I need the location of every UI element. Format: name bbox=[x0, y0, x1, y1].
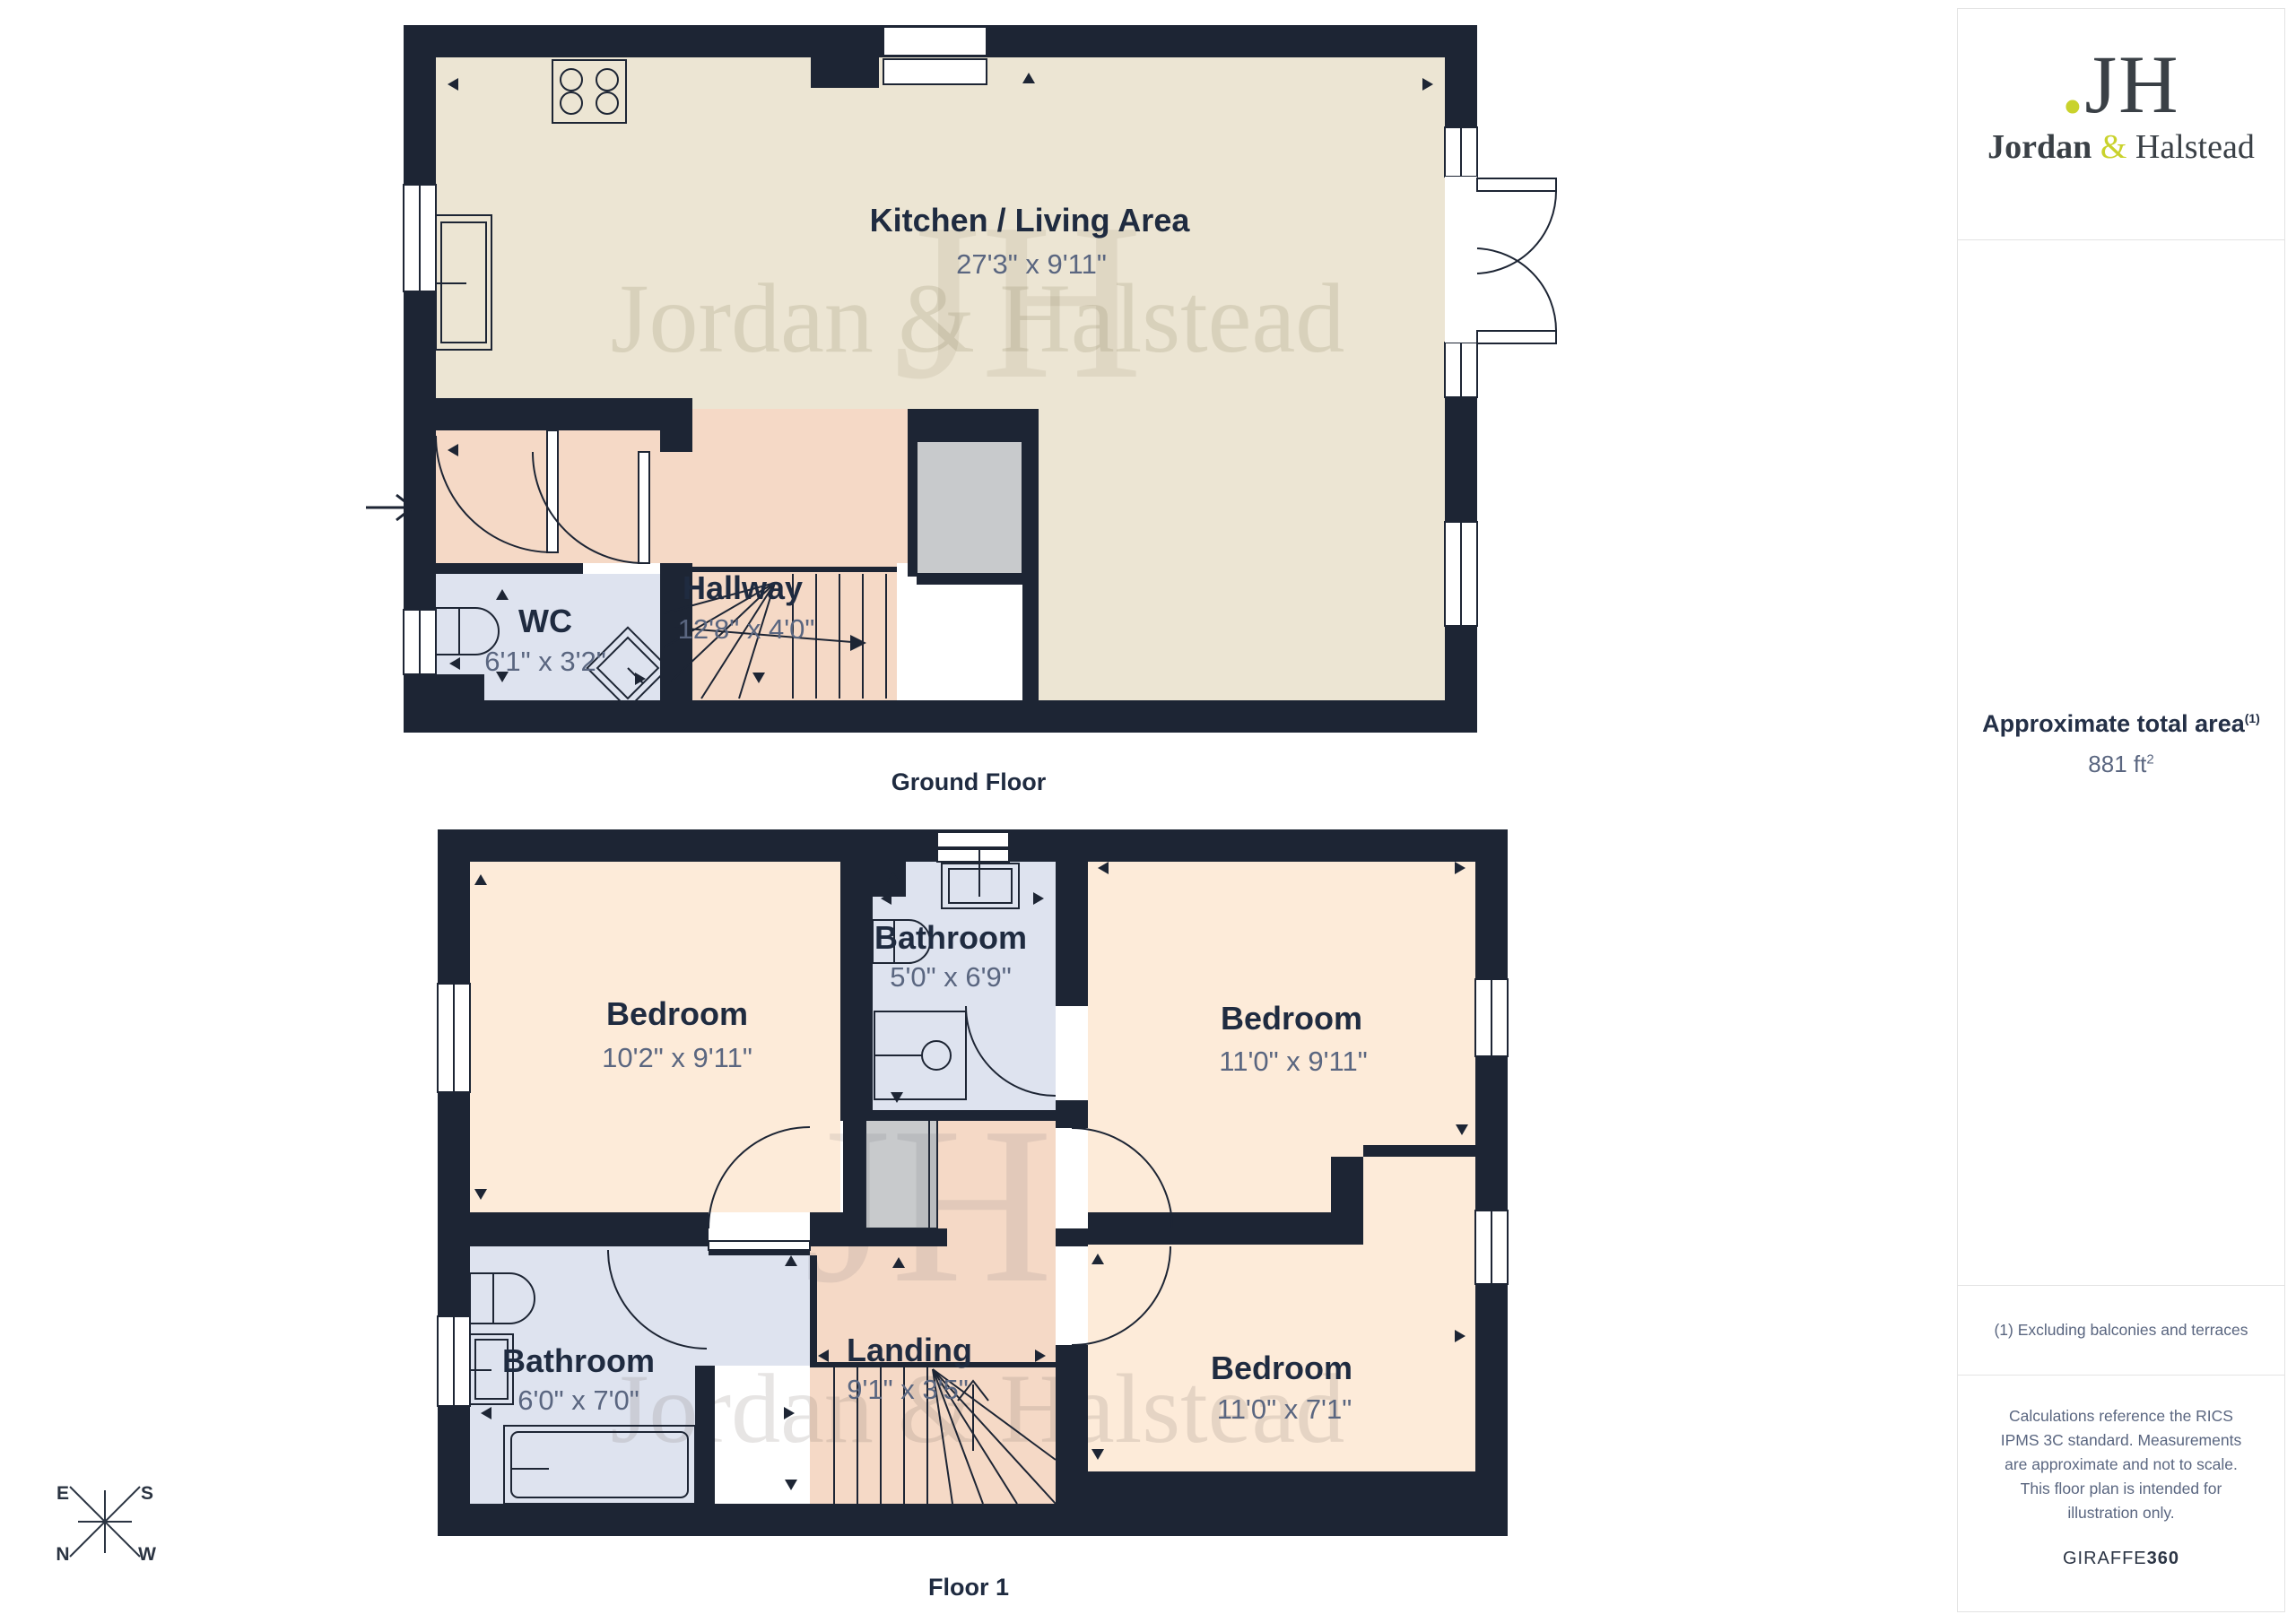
room-dims-bathroom1: 5'0" x 6'9" bbox=[890, 961, 1012, 993]
room-label-kitchen: Kitchen / Living Area bbox=[870, 202, 1191, 239]
disclaimer-section: Calculations reference the RICS IPMS 3C … bbox=[1958, 1376, 2284, 1569]
disclaimer-text: Calculations reference the RICS IPMS 3C … bbox=[1990, 1404, 2252, 1525]
floor-1-plan: JH Jordan & Halstead bbox=[438, 829, 1508, 1601]
wall bbox=[1056, 862, 1088, 1006]
room-dims-landing: 9'1" x 3'5" bbox=[847, 1374, 969, 1405]
room-label-bathroom1: Bathroom bbox=[874, 919, 1027, 956]
info-sidebar: .JH Jordan & Halstead Approximate total … bbox=[1957, 8, 2285, 1612]
floor1-title: Floor 1 bbox=[928, 1574, 1009, 1601]
total-area-value: 881 ft2 bbox=[1958, 751, 2284, 778]
window bbox=[1445, 343, 1477, 397]
bedroom1-floor bbox=[470, 862, 840, 1212]
room-dims-kitchen: 27'3" x 9'11" bbox=[956, 248, 1107, 280]
bathroom-window-top bbox=[937, 832, 1009, 862]
compass-west: W bbox=[138, 1544, 156, 1565]
door-leaf bbox=[1477, 331, 1556, 343]
door-leaf bbox=[547, 430, 558, 552]
window bbox=[1475, 1211, 1508, 1284]
wall bbox=[843, 1228, 947, 1246]
giraffe360-brand: GIRAFFE360 bbox=[1958, 1549, 2284, 1569]
room-label-hallway: Hallway bbox=[683, 569, 803, 606]
wall bbox=[1022, 409, 1039, 700]
wall bbox=[1331, 1157, 1363, 1245]
compass-icon: E S N W bbox=[56, 1483, 156, 1565]
wall bbox=[443, 1504, 1508, 1536]
wall bbox=[908, 441, 917, 577]
ground-floor-title: Ground Floor bbox=[891, 768, 1047, 795]
window bbox=[1445, 522, 1477, 626]
stair-void-ground bbox=[897, 585, 1022, 700]
floorplan-page: JH Jordan & Halstead bbox=[0, 0, 2296, 1623]
wall bbox=[873, 1110, 1088, 1121]
room-dims-bedroom1: 10'2" x 9'11" bbox=[602, 1042, 752, 1073]
footnote-text: (1) Excluding balconies and terraces bbox=[1994, 1321, 2248, 1340]
wall bbox=[917, 574, 1022, 585]
door-leaf bbox=[639, 452, 649, 563]
room-dims-bedroom2: 11'0" x 9'11" bbox=[1219, 1046, 1367, 1077]
logo-wordmark: Jordan & Halstead bbox=[1958, 127, 2284, 167]
total-area-text: Approximate total area bbox=[1982, 710, 2245, 737]
total-area-label: Approximate total area(1) bbox=[1958, 710, 2284, 738]
wall bbox=[404, 700, 1477, 733]
wall bbox=[404, 674, 484, 733]
chimney-breast bbox=[811, 25, 879, 88]
total-area-section: Approximate total area(1) 881 ft2 bbox=[1958, 710, 2284, 778]
wall bbox=[810, 1212, 843, 1246]
window bbox=[404, 185, 436, 291]
logo-section: .JH Jordan & Halstead bbox=[1958, 9, 2284, 240]
wall bbox=[660, 398, 692, 452]
giraffe-360: 360 bbox=[2147, 1549, 2179, 1568]
front-door-top bbox=[883, 27, 987, 84]
footnote-section: (1) Excluding balconies and terraces bbox=[1958, 1285, 2284, 1376]
wall bbox=[843, 1119, 865, 1228]
room-label-landing: Landing bbox=[847, 1332, 972, 1368]
watermark-name: Jordan & Halstead bbox=[611, 264, 1345, 373]
room-label-bedroom2: Bedroom bbox=[1221, 1000, 1362, 1037]
logo-dot: . bbox=[2062, 39, 2084, 130]
room-dims-wc: 6'1" x 3'2" bbox=[484, 646, 606, 677]
compass-north: N bbox=[56, 1544, 69, 1565]
window bbox=[1445, 127, 1477, 177]
wall bbox=[695, 1366, 715, 1504]
room-label-bedroom1: Bedroom bbox=[606, 995, 748, 1032]
wall bbox=[1056, 1228, 1088, 1246]
storage-cupboard-ground bbox=[917, 441, 1022, 574]
wall bbox=[1475, 829, 1508, 1536]
wall bbox=[1363, 1145, 1475, 1157]
room-dims-bathroom2: 6'0" x 7'0" bbox=[517, 1384, 639, 1416]
room-dims-hallway: 12'8" x 4'0" bbox=[678, 613, 815, 645]
compass-south: S bbox=[141, 1483, 153, 1504]
wall bbox=[552, 398, 660, 430]
logo-ampersand: & bbox=[2100, 128, 2127, 166]
logo-name-primary: Jordan bbox=[1987, 128, 2092, 166]
wall bbox=[436, 563, 583, 574]
room-label-wc: WC bbox=[518, 603, 572, 639]
ground-floor-plan: JH Jordan & Halstead bbox=[366, 25, 1556, 795]
compass-east: E bbox=[57, 1483, 69, 1504]
floorplan-drawing: JH Jordan & Halstead bbox=[0, 0, 2296, 1623]
brand-logo: .JH bbox=[1958, 43, 2284, 126]
window bbox=[438, 984, 470, 1092]
area-number: 881 ft bbox=[2088, 751, 2146, 777]
room-dims-bedroom3: 11'0" x 7'1" bbox=[1217, 1393, 1352, 1425]
window bbox=[1475, 979, 1508, 1056]
wall bbox=[840, 862, 873, 1121]
footnote-reference: (1) bbox=[2245, 711, 2260, 725]
wall bbox=[1088, 1471, 1475, 1504]
door-swing-arc bbox=[1477, 248, 1556, 331]
window bbox=[404, 610, 436, 674]
area-exponent: 2 bbox=[2146, 751, 2153, 767]
logo-monogram: JH bbox=[2084, 39, 2179, 130]
french-doors bbox=[1445, 177, 1556, 343]
wall bbox=[908, 409, 1039, 441]
giraffe-text: GIRAFFE bbox=[2063, 1549, 2147, 1568]
logo-name-secondary: Halstead bbox=[2135, 128, 2255, 166]
room-label-bedroom3: Bedroom bbox=[1211, 1350, 1352, 1386]
wall bbox=[810, 1255, 817, 1366]
wall bbox=[436, 398, 552, 430]
wall bbox=[438, 829, 470, 1536]
window bbox=[438, 1316, 470, 1406]
door-opening bbox=[1445, 177, 1477, 343]
wall bbox=[1056, 1345, 1088, 1504]
door-leaf bbox=[709, 1241, 810, 1250]
wall bbox=[470, 1212, 709, 1246]
wall bbox=[1088, 1212, 1363, 1245]
door-leaf bbox=[1477, 178, 1556, 191]
room-label-bathroom2: Bathroom bbox=[502, 1342, 655, 1379]
